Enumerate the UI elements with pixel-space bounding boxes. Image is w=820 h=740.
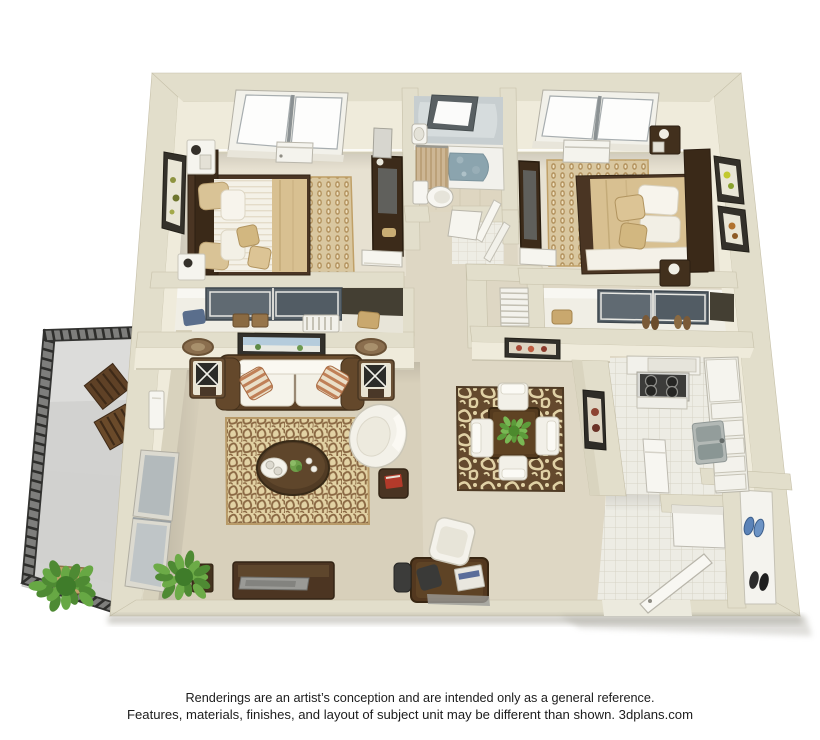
svg-text:Renderings are an artist’s con: Renderings are an artist’s conception an… xyxy=(186,690,655,705)
svg-text:Features, materials, finishes,: Features, materials, finishes, and layou… xyxy=(127,707,693,722)
